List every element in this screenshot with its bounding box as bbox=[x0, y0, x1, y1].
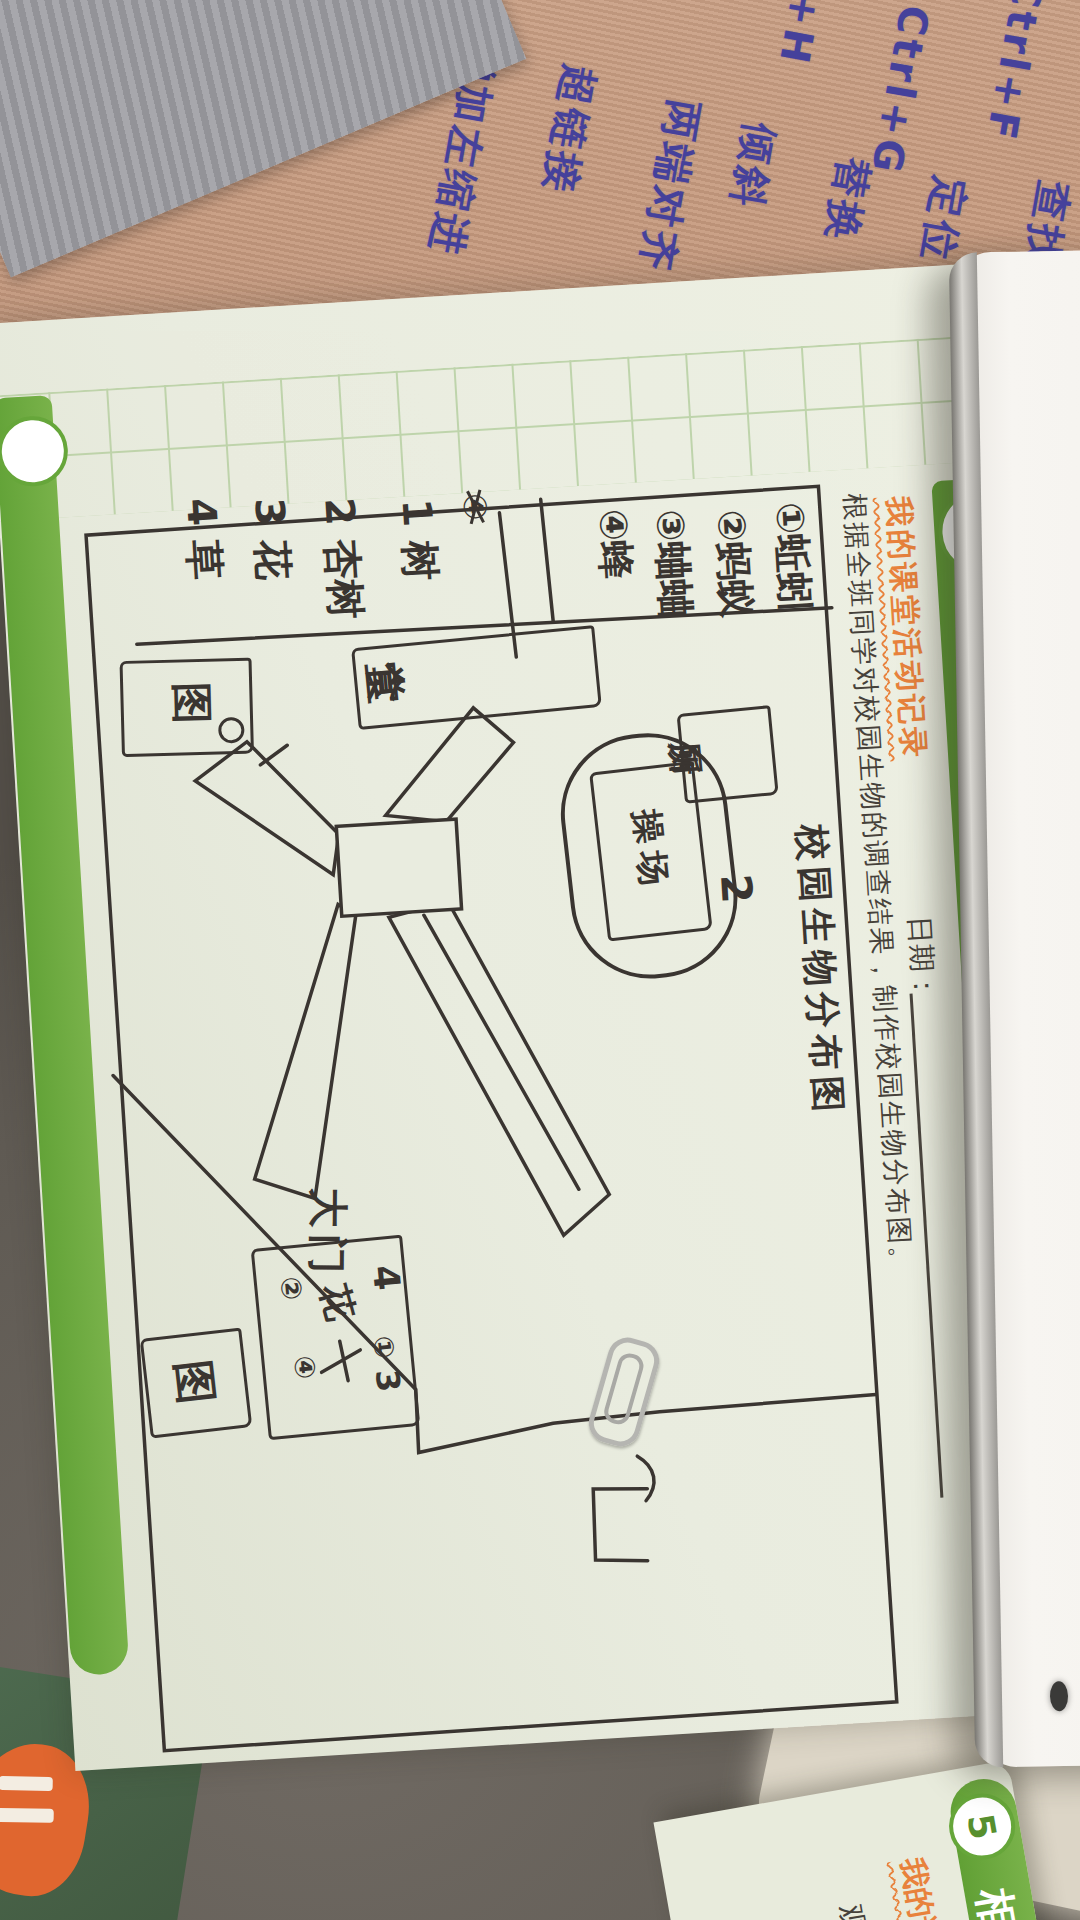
hand-drawn-map: 校园生物分布图 ①蚯蚓 ②蚂蚁 ③蛐蛐 ④蜂 ④ 1 树 2 杏树 3 花 4 … bbox=[81, 478, 903, 1756]
flowerbed-box: 4 ① 3 花 ② ④ bbox=[251, 1235, 421, 1441]
date-label: 日期： bbox=[900, 915, 943, 1001]
paperclip-inner bbox=[601, 1351, 646, 1427]
flowerbed-mark: 4 bbox=[365, 1263, 408, 1292]
building-box-1-scribble bbox=[218, 717, 245, 744]
workbook-page: 制作校园生物分布图 2 我的课堂活动记录 日期： 根据全班同学对校园生物的调查结… bbox=[0, 260, 1080, 1771]
flowerbed-mark: ② bbox=[274, 1275, 309, 1302]
building-box-2: 图 bbox=[140, 1328, 253, 1439]
flowerbed-mark: 3 bbox=[368, 1368, 408, 1394]
phone bbox=[955, 247, 1080, 1767]
flowerbed-mark: 花 bbox=[308, 1278, 365, 1326]
phone-camera-icon bbox=[1050, 1681, 1069, 1711]
legend-plant: 2 杏树 bbox=[311, 496, 373, 621]
legend-scribbled-marker: ④ bbox=[455, 492, 495, 521]
legend-insect: ①蚯蚓 bbox=[763, 501, 821, 612]
photo-of-workbook-scene: { "desk_mat": { "shortcuts": [ {"keys": … bbox=[0, 0, 1080, 1920]
page-margin-grid bbox=[0, 332, 1042, 522]
flowerbed-mark: ④ bbox=[287, 1354, 322, 1381]
playground-mark: 2 bbox=[711, 873, 762, 905]
section5-body-text: 观察 bbox=[831, 1901, 878, 1920]
legend-insect: ②蚂蚁 bbox=[705, 508, 763, 619]
building-box-1-label: 图 bbox=[163, 681, 220, 724]
legend-insect: ④蜂 bbox=[586, 507, 641, 580]
book-badge-glyphs bbox=[0, 1808, 54, 1823]
section5-subtitle: 我的课 bbox=[891, 1855, 947, 1920]
building-box-2-label: 图 bbox=[163, 1357, 227, 1407]
legend-insect: ③蛐蛐 bbox=[644, 508, 702, 619]
playground-box: 操场 bbox=[589, 761, 713, 942]
legend-plant: 3 花 bbox=[241, 496, 301, 581]
flowerbed-mark: ① bbox=[368, 1334, 401, 1360]
building-box-1: 图 bbox=[120, 658, 254, 757]
legend-plant: 1 树 bbox=[388, 497, 448, 582]
book-badge-glyphs bbox=[0, 1776, 53, 1791]
legend-plant: 4 草 bbox=[173, 496, 233, 581]
section5-band-title: 相 bbox=[965, 1884, 1027, 1920]
